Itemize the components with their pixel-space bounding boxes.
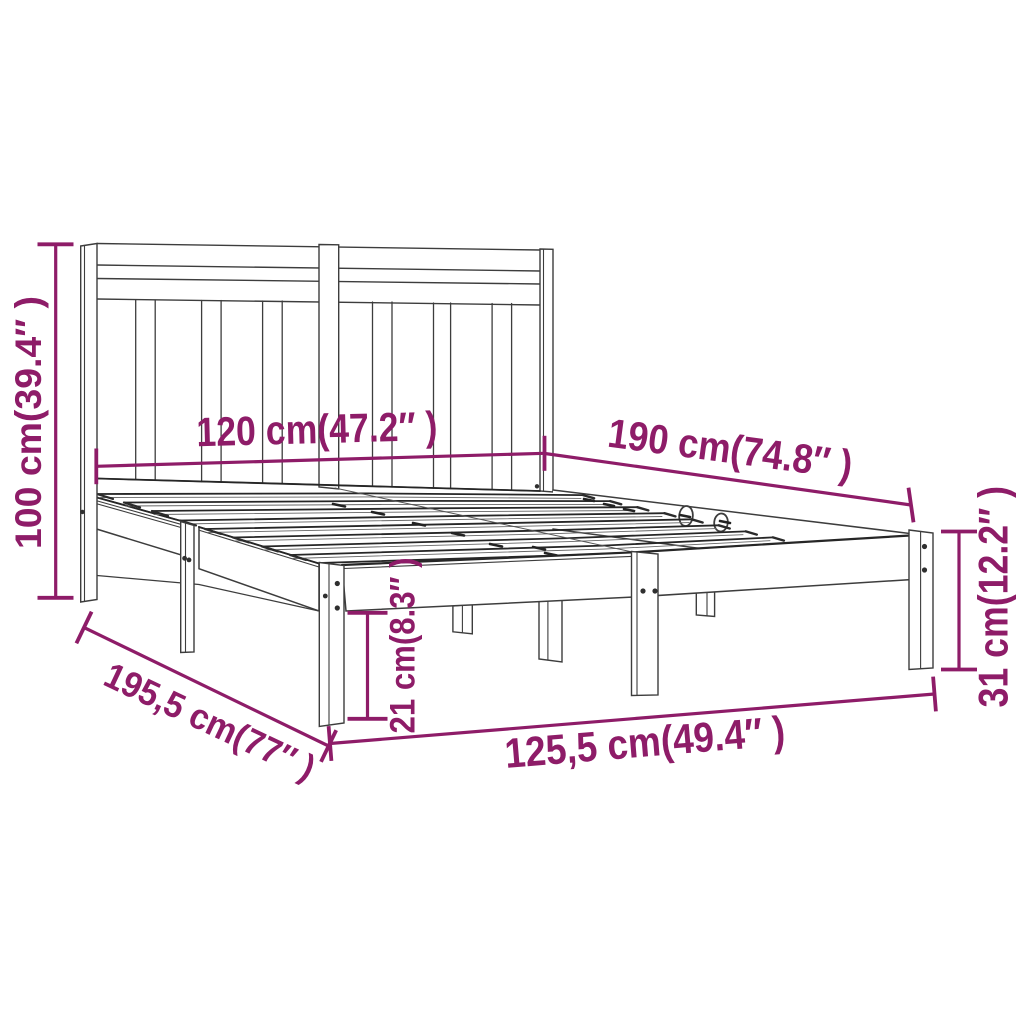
svg-text:100 cm(39.4″ ): 100 cm(39.4″ )	[8, 296, 49, 549]
svg-text:21 cm(8.3″ ): 21 cm(8.3″ )	[384, 558, 423, 734]
svg-text:120 cm(47.2″ ): 120 cm(47.2″ )	[196, 403, 438, 455]
svg-text:31 cm(12.2″ ): 31 cm(12.2″ )	[970, 486, 1017, 708]
